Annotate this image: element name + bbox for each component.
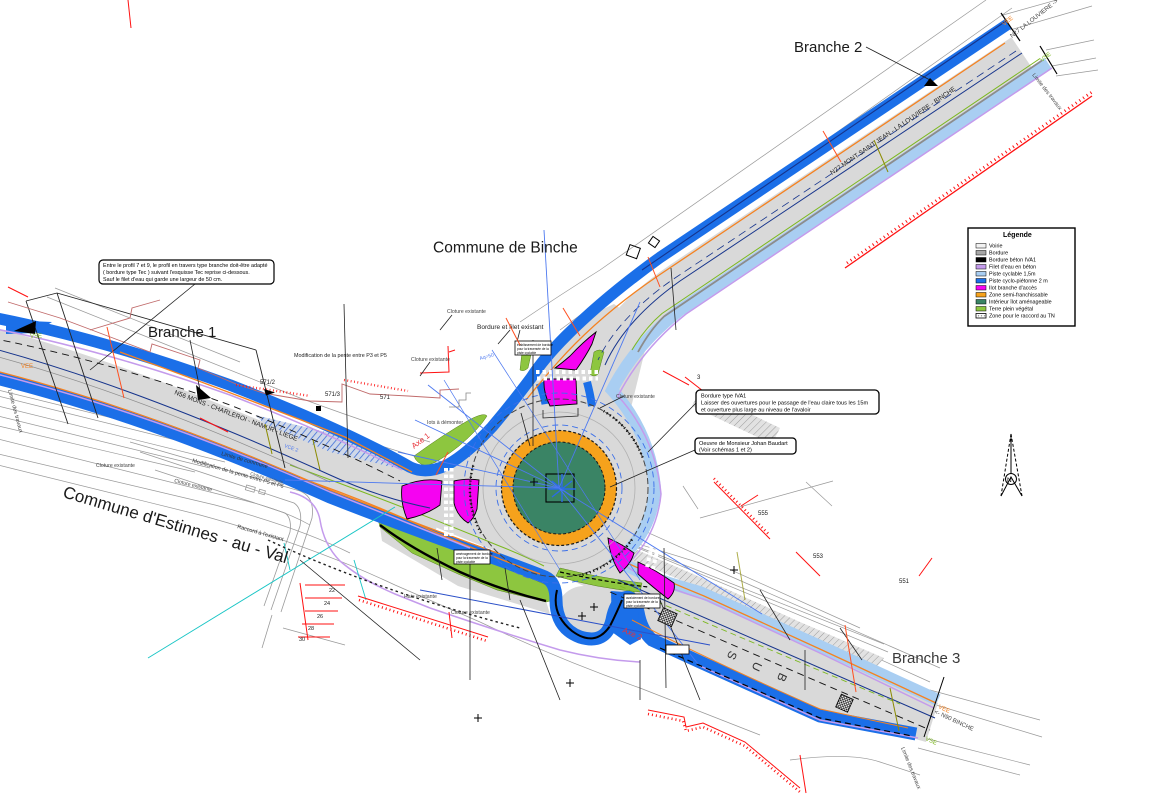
- svg-text:Sauf le filet d'eau qui garde: Sauf le filet d'eau qui garde une largeu…: [103, 277, 222, 283]
- svg-text:Oeuvre de Monsieur Johan Bauda: Oeuvre de Monsieur Johan Baudart: [699, 441, 788, 447]
- svg-text:piste cyclable: piste cyclable: [517, 351, 536, 355]
- svg-text:Laisser des ouvertures pour le: Laisser des ouvertures pour le passage d…: [701, 401, 868, 407]
- svg-text:Commune de Binche: Commune de Binche: [433, 240, 578, 257]
- svg-text:(Voir schémas 1 et 2): (Voir schémas 1 et 2): [699, 448, 752, 454]
- svg-text:Bordure et filet existant: Bordure et filet existant: [477, 324, 544, 331]
- svg-text:Bordure béton IVA1: Bordure béton IVA1: [989, 258, 1036, 264]
- svg-text:VSE: VSE: [924, 736, 937, 747]
- svg-text:piste cyclable: piste cyclable: [456, 560, 475, 564]
- svg-text:Légende: Légende: [1003, 232, 1032, 239]
- svg-text:30: 30: [299, 637, 305, 643]
- svg-text:Aq=50: Aq=50: [479, 352, 495, 362]
- svg-text:Voirie: Voirie: [989, 244, 1002, 250]
- svg-text:571/3: 571/3: [325, 392, 341, 398]
- svg-text:et ouverture plus large au niv: et ouverture plus large au niveau de l'a…: [701, 408, 811, 414]
- svg-text:571: 571: [380, 395, 391, 401]
- svg-text:Cloture existante: Cloture existante: [447, 309, 486, 315]
- svg-text:Ilot branche d'accès: Ilot branche d'accès: [989, 286, 1037, 292]
- svg-text:Branche 3: Branche 3: [892, 650, 960, 667]
- svg-text:Cloture existante: Cloture existante: [96, 463, 135, 469]
- svg-text:Limite des travaux: Limite des travaux: [1030, 73, 1062, 112]
- svg-text:Filet d'eau en béton: Filet d'eau en béton: [989, 265, 1036, 271]
- svg-text:Branche 1: Branche 1: [148, 324, 216, 341]
- svg-text:Iots à démonter: Iots à démonter: [427, 420, 463, 426]
- svg-text:( bordure type Tec ) suivant l: ( bordure type Tec ) suivant l'esquisse …: [103, 270, 250, 276]
- svg-text:Entre le profil 7 et 9, le pro: Entre le profil 7 et 9, le profil en tra…: [103, 263, 268, 269]
- svg-text:Terre plein végétal: Terre plein végétal: [989, 307, 1033, 313]
- svg-text:24: 24: [324, 601, 330, 607]
- svg-text:Bordure: Bordure: [989, 251, 1008, 257]
- svg-text:571/2: 571/2: [260, 380, 276, 386]
- svg-text:piste cyclable: piste cyclable: [626, 604, 645, 608]
- svg-text:28: 28: [308, 626, 314, 632]
- svg-text:26: 26: [317, 614, 323, 620]
- svg-text:VEE: VEE: [21, 364, 33, 370]
- svg-text:555: 555: [758, 511, 769, 517]
- svg-text:Zone pour le raccord au TN: Zone pour le raccord au TN: [989, 314, 1055, 320]
- svg-text:Intérieur îlot aménageable: Intérieur îlot aménageable: [989, 300, 1052, 306]
- svg-text:Cloture existante: Cloture existante: [174, 478, 213, 493]
- svg-text:Zone semi-franchissable: Zone semi-franchissable: [989, 293, 1048, 299]
- svg-text:Piste cyclable 1,5m: Piste cyclable 1,5m: [989, 272, 1036, 278]
- svg-text:Haie existante: Haie existante: [404, 594, 437, 600]
- svg-text:Cloture existante: Cloture existante: [616, 394, 655, 400]
- svg-text:Branche 2: Branche 2: [794, 39, 862, 56]
- svg-text:Piste cyclo-piétonne 2 m: Piste cyclo-piétonne 2 m: [989, 279, 1048, 285]
- svg-text:Cloture existante: Cloture existante: [451, 610, 490, 616]
- svg-text:Commune d'Estinnes - au - Val: Commune d'Estinnes - au - Val: [61, 483, 290, 568]
- svg-text:553: 553: [813, 554, 824, 560]
- svg-text:22: 22: [329, 588, 335, 594]
- svg-text:Bordure type IVA1: Bordure type IVA1: [701, 394, 746, 400]
- svg-text:Limite des travaux: Limite des travaux: [899, 747, 921, 791]
- svg-text:Modification de la pente entre: Modification de la pente entre P3 et P5: [294, 353, 387, 359]
- svg-text:551: 551: [899, 579, 910, 585]
- svg-text:<- N90 BINCHE: <- N90 BINCHE: [933, 709, 974, 732]
- svg-text:N: N: [1007, 477, 1012, 484]
- svg-text:VSE: VSE: [30, 334, 42, 340]
- svg-text:3: 3: [697, 375, 701, 381]
- svg-text:Cloture existante: Cloture existante: [411, 357, 450, 363]
